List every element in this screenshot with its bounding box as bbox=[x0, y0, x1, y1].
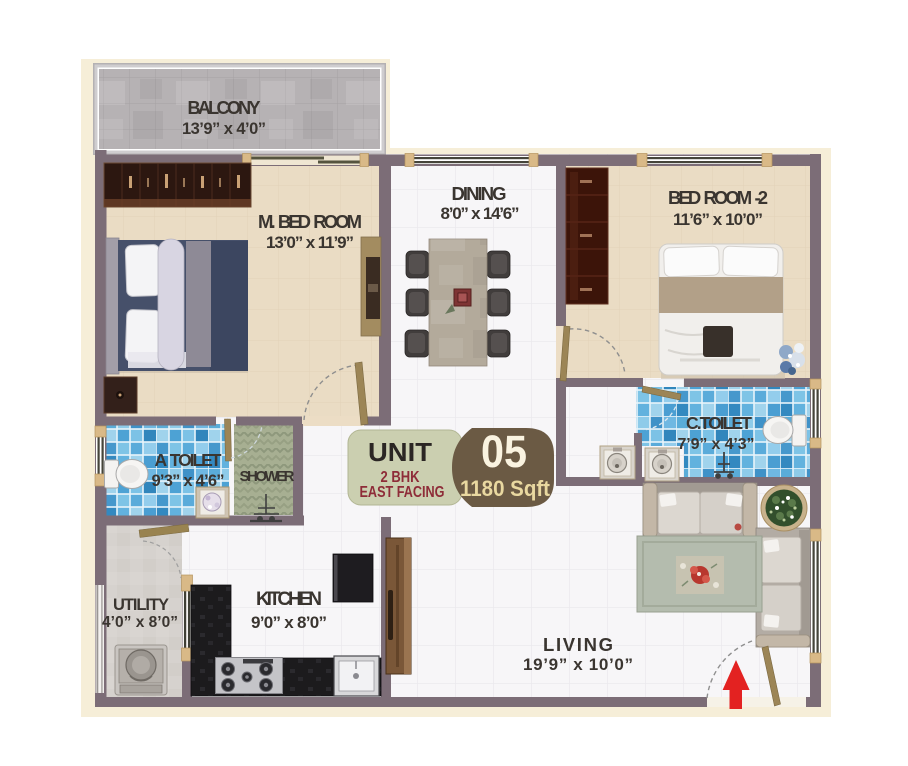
svg-text:A TOILET: A TOILET bbox=[155, 450, 222, 470]
svg-text:9’0” x 8’0”: 9’0” x 8’0” bbox=[251, 613, 327, 632]
svg-text:UNIT: UNIT bbox=[368, 437, 432, 467]
svg-text:05: 05 bbox=[481, 426, 527, 477]
svg-text:BALCONY: BALCONY bbox=[188, 98, 261, 118]
svg-text:8’0” x 14’6”: 8’0” x 14’6” bbox=[441, 204, 520, 223]
svg-text:4’0” x 8’0”: 4’0” x 8’0” bbox=[102, 614, 178, 631]
svg-text:EAST FACING: EAST FACING bbox=[360, 484, 445, 501]
svg-text:KITCHEN: KITCHEN bbox=[256, 589, 322, 610]
svg-text:DINING: DINING bbox=[452, 183, 507, 204]
svg-text:19’9” x 10’0”: 19’9” x 10’0” bbox=[523, 655, 633, 674]
svg-text:13’0” x 11’9”: 13’0” x 11’9” bbox=[266, 233, 354, 252]
svg-text:9’3” x 4’6”: 9’3” x 4’6” bbox=[152, 472, 225, 490]
svg-text:LIVING: LIVING bbox=[543, 634, 613, 655]
svg-text:11’6” x 10’0”: 11’6” x 10’0” bbox=[673, 210, 763, 229]
svg-text:13’9” x 4’0”: 13’9” x 4’0” bbox=[182, 120, 266, 138]
svg-text:M. BED ROOM: M. BED ROOM bbox=[258, 211, 362, 232]
svg-text:C.TOILET: C.TOILET bbox=[686, 413, 752, 433]
svg-text:SHOWER: SHOWER bbox=[240, 468, 295, 485]
svg-text:UTILITY: UTILITY bbox=[113, 596, 169, 614]
svg-text:1180 Sqft: 1180 Sqft bbox=[460, 476, 551, 501]
svg-text:7’9” x 4’3”: 7’9” x 4’3” bbox=[678, 436, 755, 453]
svg-text:BED ROOM -2: BED ROOM -2 bbox=[668, 187, 768, 208]
